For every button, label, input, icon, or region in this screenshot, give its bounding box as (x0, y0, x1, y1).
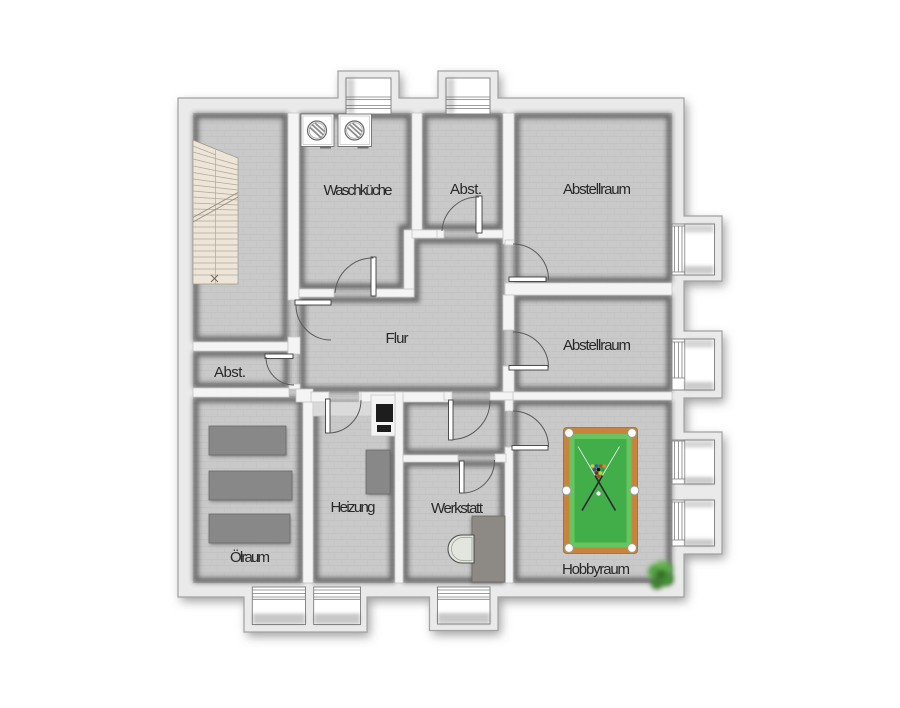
svg-text:Waschküche: Waschküche (324, 182, 393, 199)
svg-text:Hobbyraum: Hobbyraum (562, 561, 630, 578)
svg-text:Abstellraum: Abstellraum (563, 181, 631, 198)
svg-text:Werkstatt: Werkstatt (431, 500, 484, 517)
svg-text:Abstellraum: Abstellraum (563, 337, 631, 354)
svg-text:Abst.: Abst. (214, 364, 246, 381)
svg-text:Abst.: Abst. (450, 181, 482, 198)
svg-text:Heizung: Heizung (331, 499, 376, 516)
svg-text:Ölraum: Ölraum (230, 548, 270, 566)
svg-text:Flur: Flur (386, 330, 409, 347)
